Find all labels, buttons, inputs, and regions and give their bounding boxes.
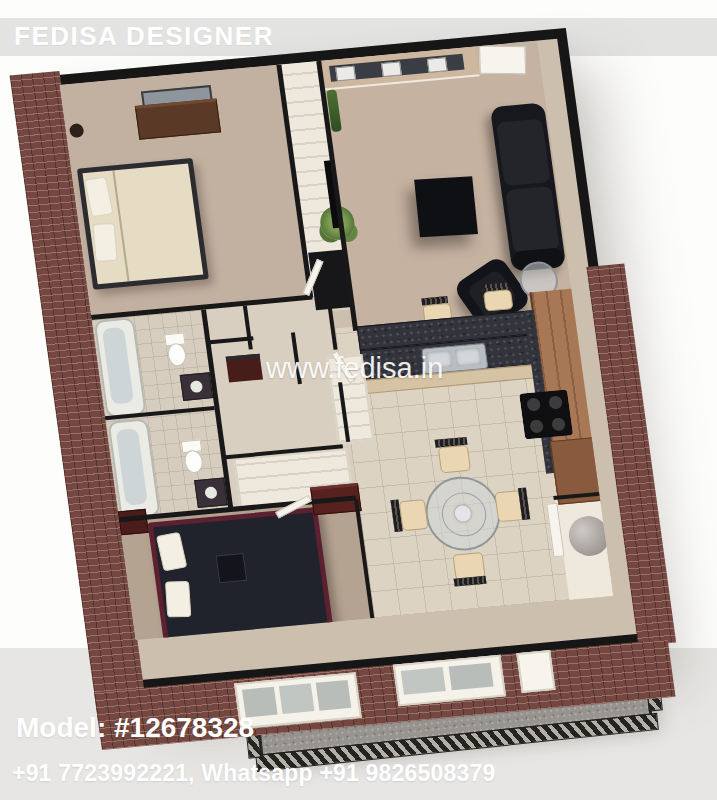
picture-frame: [381, 61, 402, 77]
dining-chair-seat: [399, 499, 429, 531]
model-number-text: Model: #12678328: [16, 712, 254, 744]
window-pane: [401, 667, 446, 695]
picture-frame: [427, 57, 448, 73]
floorplan-render: FEDISA DESIGNER www.fedisa.in Model: #12…: [0, 0, 717, 800]
vanity-sink: [190, 380, 204, 393]
vanity-2: [194, 477, 228, 508]
watermark-text: www.fedisa.in: [266, 352, 443, 385]
stove-cooktop: [519, 389, 573, 439]
pillow: [84, 176, 113, 217]
front-door: [516, 650, 555, 693]
vanity-1: [180, 372, 213, 401]
tub-basin: [116, 428, 148, 505]
master-bed: [77, 158, 209, 290]
front-window-dining: [393, 655, 506, 707]
designer-banner-text: FEDISA DESIGNER: [14, 21, 274, 52]
blanket-fold: [112, 170, 129, 281]
window-pane: [449, 663, 494, 691]
pillow: [165, 581, 191, 617]
contact-text: +91 7723992221, Whatsapp +91 9826508379: [12, 760, 496, 787]
coffee-table-ottoman: [414, 176, 478, 237]
picture-frame: [335, 66, 356, 82]
bedroom2-bed: [148, 507, 334, 640]
pillow: [92, 223, 117, 262]
apartment-interior: [59, 41, 613, 641]
window-pane: [316, 680, 352, 711]
bed-throw: [216, 553, 248, 583]
bar-chair-seat: [483, 289, 514, 311]
vanity-sink: [204, 486, 218, 499]
entry-door: [479, 46, 526, 74]
tub-basin: [102, 327, 134, 404]
dining-chair-seat: [438, 445, 471, 474]
picture-frame-band: [329, 54, 465, 82]
sofa-cushion: [496, 119, 550, 187]
pillow: [156, 532, 188, 572]
sofa-cushion: [505, 186, 559, 254]
sink-basin: [455, 347, 482, 366]
hall-vanity-cabinet: [226, 354, 263, 383]
window-pane: [279, 683, 315, 714]
